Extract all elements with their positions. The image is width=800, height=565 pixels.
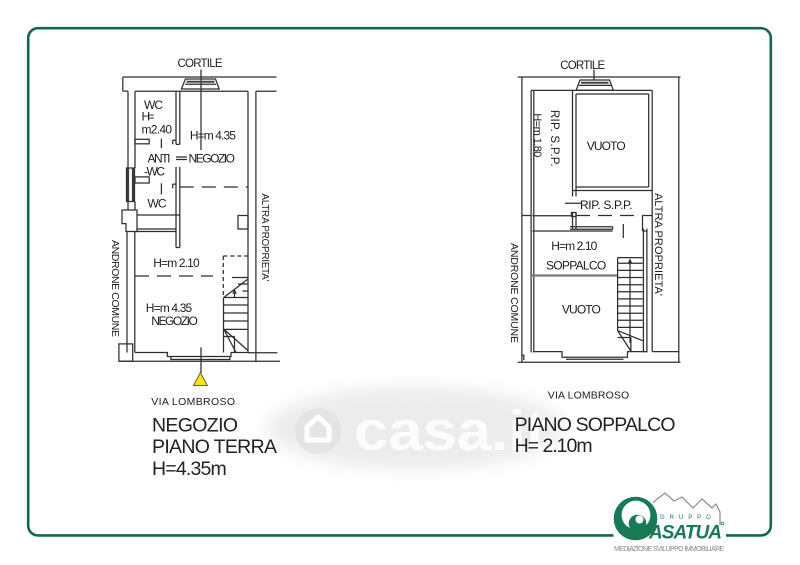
svg-text:PIANO SOPPALCO: PIANO SOPPALCO [515, 414, 676, 436]
svg-text:H=m 4.35: H=m 4.35 [146, 301, 193, 315]
svg-text:VUOTO: VUOTO [562, 303, 601, 317]
svg-text:m2.40: m2.40 [142, 122, 173, 136]
svg-text:H=m 4.35: H=m 4.35 [190, 128, 236, 142]
svg-text:NEGOZIO: NEGOZIO [189, 152, 236, 166]
svg-text:ASATUA: ASATUA [648, 523, 722, 544]
svg-text:WC: WC [148, 197, 167, 211]
svg-text:SOPPALCO: SOPPALCO [546, 258, 606, 272]
svg-text:ANTI: ANTI [148, 152, 171, 166]
svg-text:VIA LOMBROSO: VIA LOMBROSO [548, 390, 629, 402]
svg-text:H=m 2.10: H=m 2.10 [551, 239, 597, 253]
svg-text:VUOTO: VUOTO [587, 139, 626, 153]
svg-text:RIP. S.P.P.: RIP. S.P.P. [548, 110, 560, 167]
svg-text:NEGOZIO: NEGOZIO [151, 314, 198, 328]
svg-text:H=m 2.10: H=m 2.10 [153, 256, 200, 270]
svg-text:CORTILE: CORTILE [560, 60, 605, 72]
svg-text:ANDRONE COMUNE: ANDRONE COMUNE [109, 240, 121, 337]
svg-text:-WC: -WC [144, 165, 165, 179]
svg-text:ALTRA PROPRIETA': ALTRA PROPRIETA' [259, 193, 270, 281]
svg-text:H=4.35m: H=4.35m [152, 458, 227, 480]
svg-text:CORTILE: CORTILE [178, 58, 223, 70]
svg-text:VIA LOMBROSO: VIA LOMBROSO [151, 396, 235, 408]
svg-text:ALTRA PROPRIETA': ALTRA PROPRIETA' [652, 193, 664, 296]
svg-text:ANDRONE COMUNE: ANDRONE COMUNE [508, 243, 520, 343]
svg-text:H=m 1.80: H=m 1.80 [531, 113, 543, 157]
svg-text:MEDIAZIONE SVILUPPO IMMOBILIAR: MEDIAZIONE SVILUPPO IMMOBILIARE [614, 546, 725, 553]
svg-text:GRUPPO: GRUPPO [660, 515, 714, 521]
svg-text:PIANO TERRA: PIANO TERRA [152, 436, 277, 458]
svg-text:RIP. S.P.P.: RIP. S.P.P. [580, 198, 633, 212]
svg-text:H= 2.10m: H= 2.10m [515, 435, 593, 457]
svg-text:NEGOZIO: NEGOZIO [152, 415, 238, 437]
